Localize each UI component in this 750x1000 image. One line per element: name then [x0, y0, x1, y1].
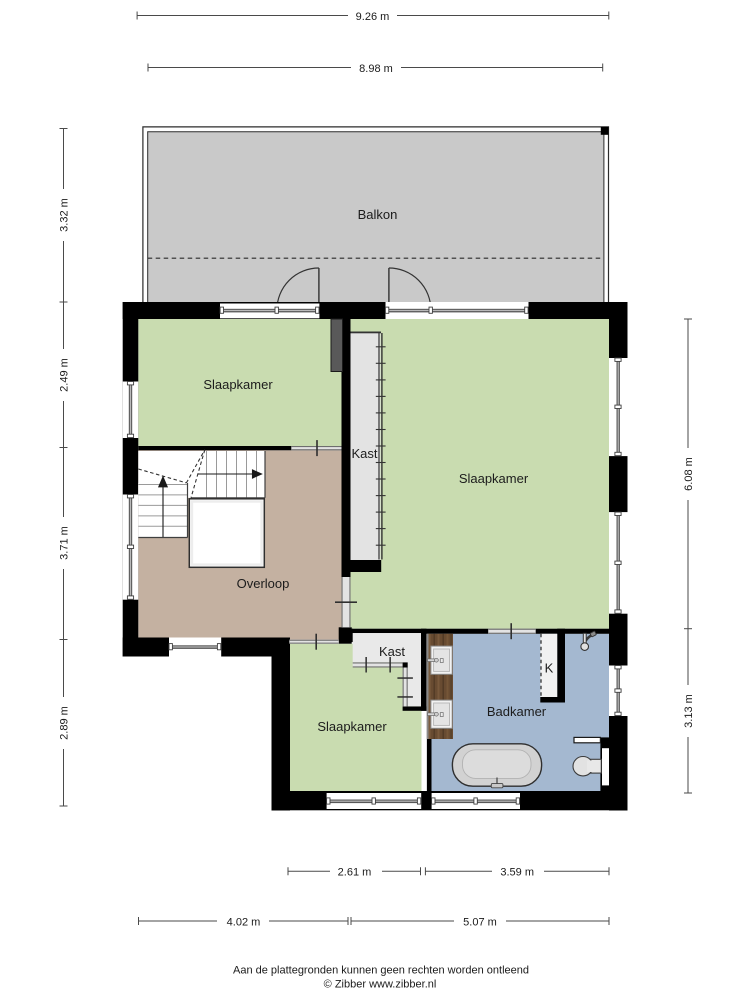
svg-text:2.61 m: 2.61 m [338, 867, 372, 879]
svg-text:5.07 m: 5.07 m [463, 916, 497, 928]
svg-text:K: K [545, 661, 554, 676]
svg-text:3.32 m: 3.32 m [58, 198, 70, 232]
svg-text:3.59 m: 3.59 m [500, 867, 534, 879]
svg-text:Kast: Kast [379, 644, 405, 659]
svg-text:8.98 m: 8.98 m [359, 63, 393, 75]
svg-text:Slaapkamer: Slaapkamer [317, 719, 387, 734]
svg-text:3.13 m: 3.13 m [683, 694, 695, 728]
svg-text:Kast: Kast [351, 446, 377, 461]
svg-text:9.26 m: 9.26 m [356, 11, 390, 23]
svg-text:Slaapkamer: Slaapkamer [459, 471, 529, 486]
svg-text:3.71 m: 3.71 m [58, 526, 70, 560]
svg-text:2.49 m: 2.49 m [58, 358, 70, 392]
svg-text:Overloop: Overloop [237, 576, 290, 591]
svg-text:Slaapkamer: Slaapkamer [203, 377, 273, 392]
svg-text:Aan de plattegronden kunnen ge: Aan de plattegronden kunnen geen rechten… [233, 965, 529, 977]
svg-text:2.89 m: 2.89 m [58, 706, 70, 740]
svg-text:6.08 m: 6.08 m [683, 457, 695, 491]
svg-text:Balkon: Balkon [358, 207, 398, 222]
svg-text:Badkamer: Badkamer [487, 704, 547, 719]
svg-text:© Zibber www.zibber.nl: © Zibber www.zibber.nl [324, 979, 437, 991]
svg-text:4.02 m: 4.02 m [227, 916, 261, 928]
